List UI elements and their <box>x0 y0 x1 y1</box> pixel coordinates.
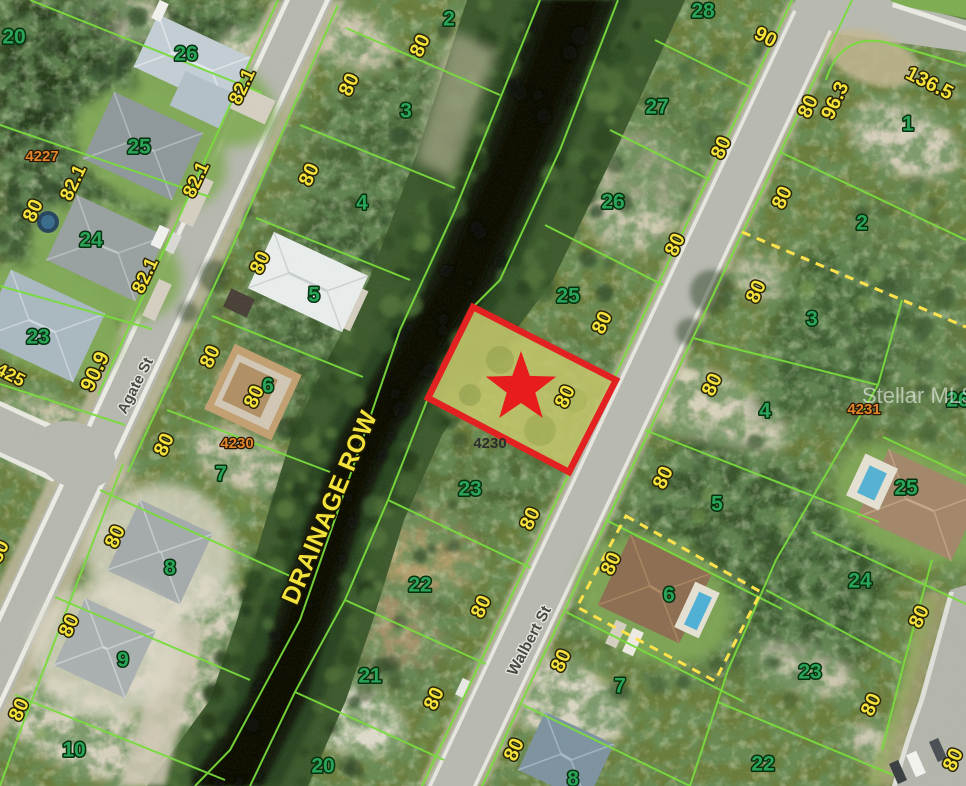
svg-text:25: 25 <box>127 136 151 159</box>
svg-text:20: 20 <box>2 26 25 49</box>
svg-text:4: 4 <box>759 400 771 423</box>
svg-text:8: 8 <box>164 557 176 580</box>
svg-text:8: 8 <box>567 768 579 786</box>
svg-text:4230: 4230 <box>220 435 253 452</box>
svg-text:25: 25 <box>556 285 580 308</box>
svg-text:24: 24 <box>79 229 103 252</box>
svg-text:5: 5 <box>711 493 723 516</box>
svg-text:26: 26 <box>601 191 624 214</box>
svg-text:9: 9 <box>117 649 129 672</box>
svg-text:7: 7 <box>614 675 626 698</box>
svg-text:28: 28 <box>691 0 715 23</box>
svg-text:24: 24 <box>848 570 872 593</box>
svg-text:26: 26 <box>174 43 197 66</box>
svg-text:4227: 4227 <box>25 148 58 165</box>
svg-text:2: 2 <box>856 212 868 235</box>
svg-text:22: 22 <box>408 574 431 597</box>
svg-text:7: 7 <box>215 463 227 486</box>
svg-text:20: 20 <box>311 755 334 778</box>
svg-text:6: 6 <box>663 584 675 607</box>
svg-text:23: 23 <box>458 478 481 501</box>
svg-text:1: 1 <box>902 113 914 136</box>
svg-text:23: 23 <box>798 661 821 684</box>
svg-text:25: 25 <box>894 477 918 500</box>
svg-text:10: 10 <box>62 739 85 762</box>
svg-text:23: 23 <box>26 326 49 349</box>
svg-text:5: 5 <box>308 284 320 307</box>
svg-text:4: 4 <box>356 192 368 215</box>
svg-text:3: 3 <box>806 308 818 331</box>
svg-text:3: 3 <box>400 100 412 123</box>
svg-text:21: 21 <box>358 665 382 688</box>
svg-text:Stellar MLS: Stellar MLS <box>862 383 966 408</box>
svg-text:27: 27 <box>645 96 668 119</box>
svg-text:4230: 4230 <box>473 435 506 452</box>
svg-text:22: 22 <box>751 753 774 776</box>
svg-text:2: 2 <box>443 8 455 31</box>
